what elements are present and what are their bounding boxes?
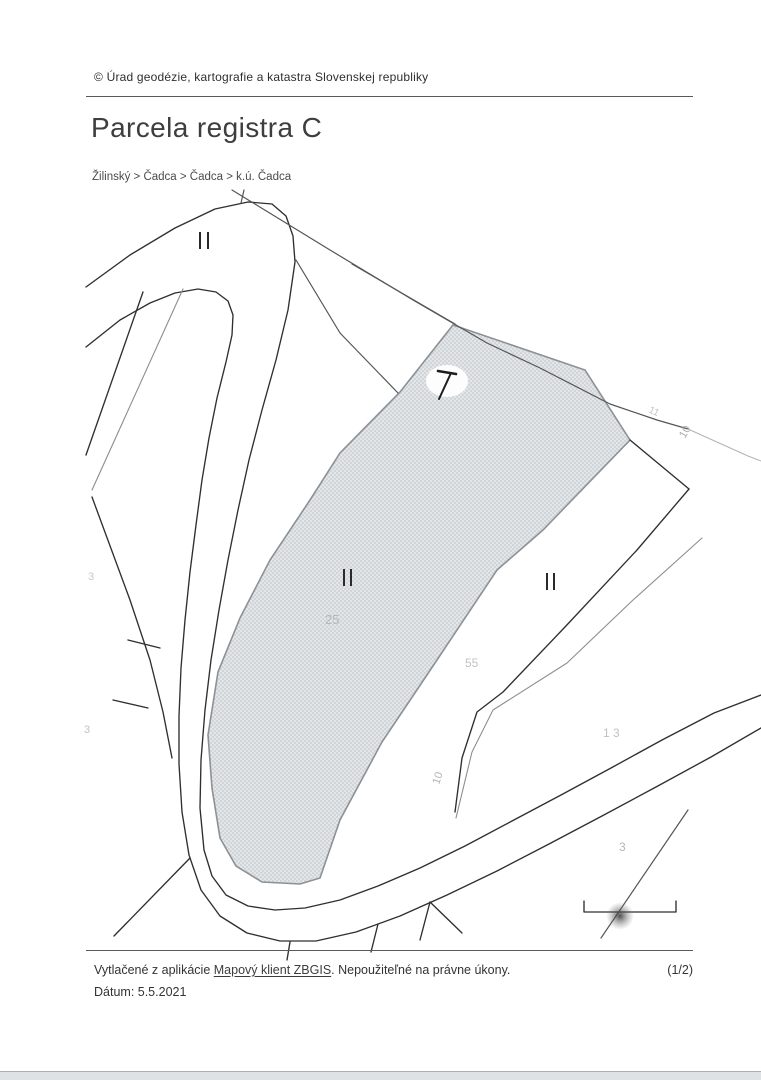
footer-printed-line: Vytlačené z aplikácie Mapový klient ZBGI…: [94, 963, 693, 977]
zbgis-app-link[interactable]: Mapový klient ZBGIS: [214, 963, 331, 977]
page-indicator: (1/2): [667, 963, 693, 977]
scanned-page-edge: [0, 1071, 761, 1080]
grassland-symbol: [200, 232, 208, 249]
boundary-line: [92, 497, 172, 758]
boundary-line: [352, 264, 455, 324]
print-date: Dátum: 5.5.2021: [94, 985, 186, 999]
parcel-label: 25: [325, 612, 339, 627]
parcel-label: 3: [619, 840, 626, 854]
boundary-line: [92, 289, 183, 490]
scan-smudge: [606, 902, 634, 930]
parcel-label: 55: [465, 656, 479, 670]
printed-from-text: Vytlačené z aplikácie: [94, 963, 214, 977]
boundary-line: [456, 538, 702, 818]
boundary-line: [114, 858, 190, 936]
cadastral-map: 25 55 1 3 3 10 10 3 11 3: [0, 0, 761, 1080]
boundary-line: [86, 292, 143, 455]
boundary-line: [688, 429, 761, 461]
boundary-line: [630, 440, 689, 489]
boundary-line: [296, 260, 398, 393]
boundary-line: [430, 902, 462, 933]
printed-cadastral-page: { "header": { "copyright": "© Úrad geodé…: [0, 0, 761, 1080]
parcel-label: 1 3: [603, 726, 620, 740]
legal-disclaimer-text: . Nepoužiteľné na právne úkony.: [331, 963, 510, 977]
grassland-symbol: [547, 573, 554, 590]
boundary-tick: [287, 942, 290, 960]
footer-divider: [86, 950, 693, 951]
boundary-line: [420, 902, 430, 940]
boundary-tick: [113, 700, 148, 708]
parcel-label: 10: [430, 771, 445, 786]
parcel-label: 3: [84, 724, 90, 736]
highlighted-parcel: [208, 325, 630, 884]
parcel-label: 3: [88, 571, 94, 583]
boundary-tick: [371, 924, 378, 952]
